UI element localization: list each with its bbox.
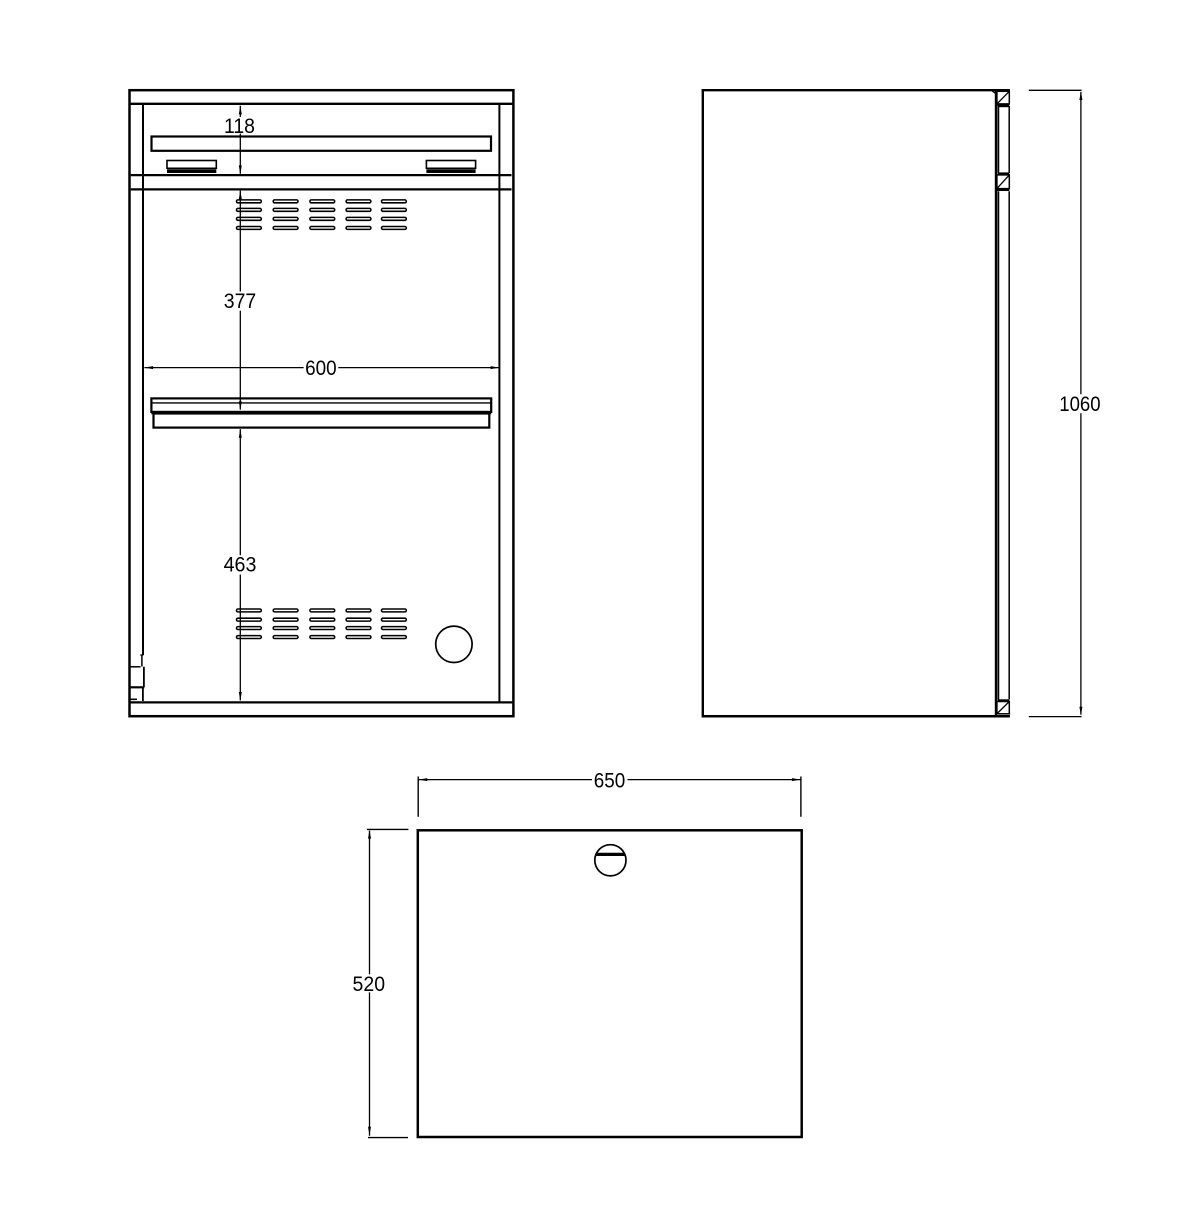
svg-text:118: 118	[224, 114, 255, 138]
svg-text:600: 600	[305, 356, 337, 380]
svg-text:377: 377	[224, 289, 256, 313]
svg-text:520: 520	[353, 972, 386, 996]
svg-text:463: 463	[224, 553, 257, 577]
svg-text:650: 650	[594, 768, 626, 792]
svg-text:1060: 1060	[1059, 392, 1100, 416]
